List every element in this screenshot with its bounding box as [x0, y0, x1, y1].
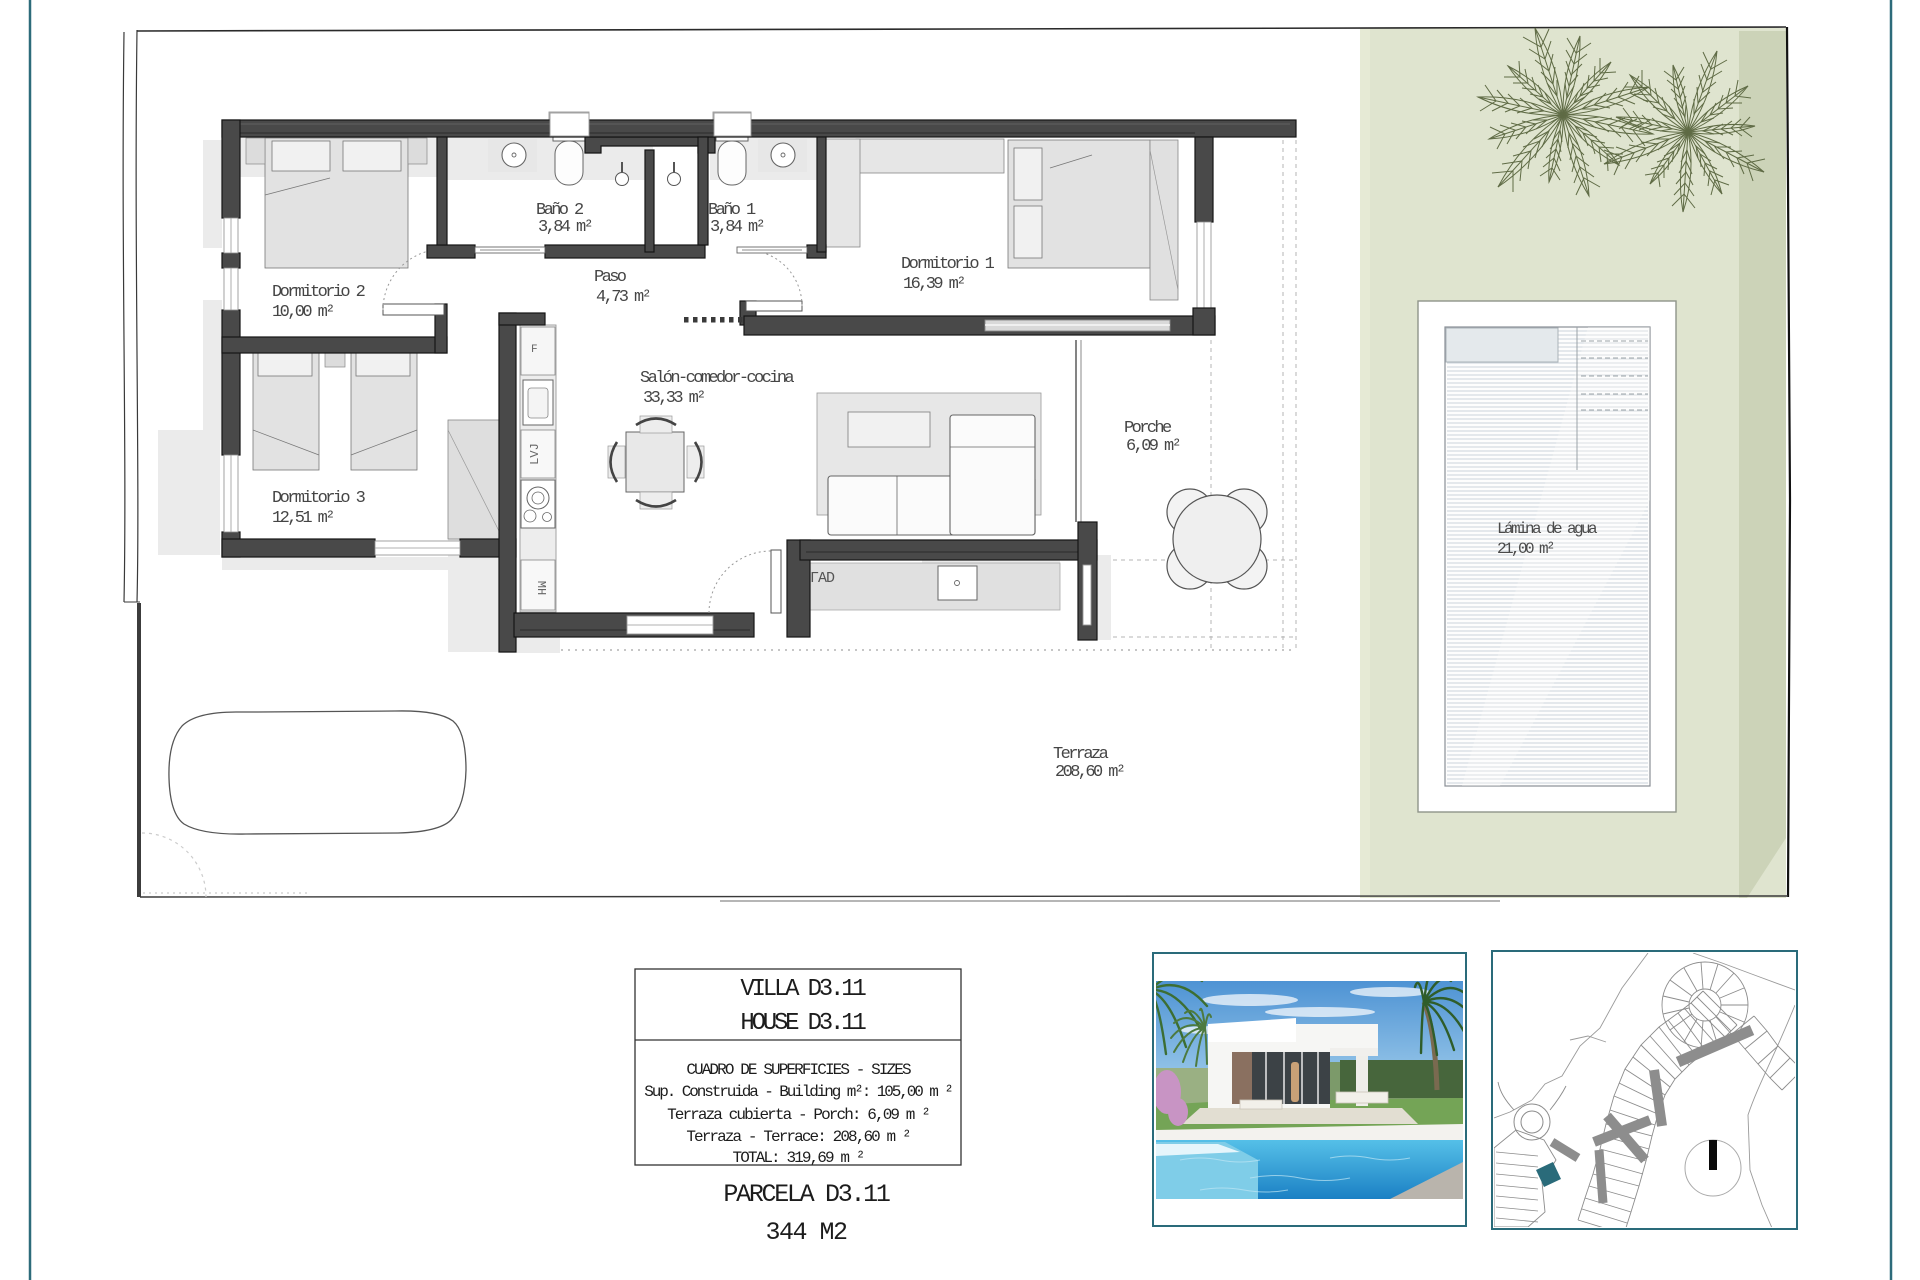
svg-text:33,33 m²: 33,33 m²	[643, 389, 704, 408]
svg-text:Salón-comedor-cocina: Salón-comedor-cocina	[640, 369, 794, 388]
svg-text:HOUSE D3.11: HOUSE D3.11	[740, 1010, 866, 1037]
svg-text:4,73 m²: 4,73 m²	[596, 288, 650, 307]
svg-text:3,84 m²: 3,84 m²	[538, 218, 592, 237]
svg-text:208,60 m²: 208,60 m²	[1055, 763, 1124, 782]
svg-text:VILLA D3.11: VILLA D3.11	[740, 976, 866, 1003]
svg-text:Lámina de agua: Lámina de agua	[1497, 520, 1598, 538]
svg-text:6,09 m²: 6,09 m²	[1126, 437, 1180, 456]
svg-text:16,39 m²: 16,39 m²	[903, 275, 964, 294]
svg-text:10,00 m²: 10,00 m²	[272, 303, 333, 322]
svg-text:Paso: Paso	[594, 268, 627, 287]
svg-text:Dormitorio 3: Dormitorio 3	[272, 489, 366, 508]
svg-text:344 M2: 344 M2	[765, 1218, 847, 1247]
svg-text:F: F	[531, 344, 537, 356]
svg-text:ΓAD: ΓAD	[810, 570, 835, 587]
svg-text:TOTAL: 319,69 m ²: TOTAL: 319,69 m ²	[733, 1149, 864, 1167]
svg-text:LVJ: LVJ	[528, 443, 542, 465]
svg-text:Terraza: Terraza	[1053, 745, 1109, 764]
svg-text:Terraza cubierta - Porch: 6,0: Terraza cubierta - Porch: 6,09 m ²	[667, 1106, 929, 1124]
svg-text:MH: MH	[534, 581, 548, 595]
svg-text:CUADRO DE SUPERFICIES - SIZES: CUADRO DE SUPERFICIES - SIZES	[686, 1061, 911, 1079]
svg-text:Sup. Construida - Building m²: Sup. Construida - Building m²: 105,00 m …	[644, 1083, 952, 1101]
svg-text:Dormitorio 1: Dormitorio 1	[901, 255, 995, 274]
svg-text:PARCELA D3.11: PARCELA D3.11	[723, 1180, 889, 1209]
svg-text:3,84 m²: 3,84 m²	[710, 218, 764, 237]
svg-text:21,00 m²: 21,00 m²	[1497, 540, 1554, 558]
svg-text:Dormitorio 2: Dormitorio 2	[272, 283, 365, 302]
svg-text:Terraza - Terrace: 208,60 m ²: Terraza - Terrace: 208,60 m ²	[686, 1128, 910, 1146]
svg-text:12,51 m²: 12,51 m²	[272, 509, 333, 528]
svg-text:Porche: Porche	[1124, 419, 1172, 438]
